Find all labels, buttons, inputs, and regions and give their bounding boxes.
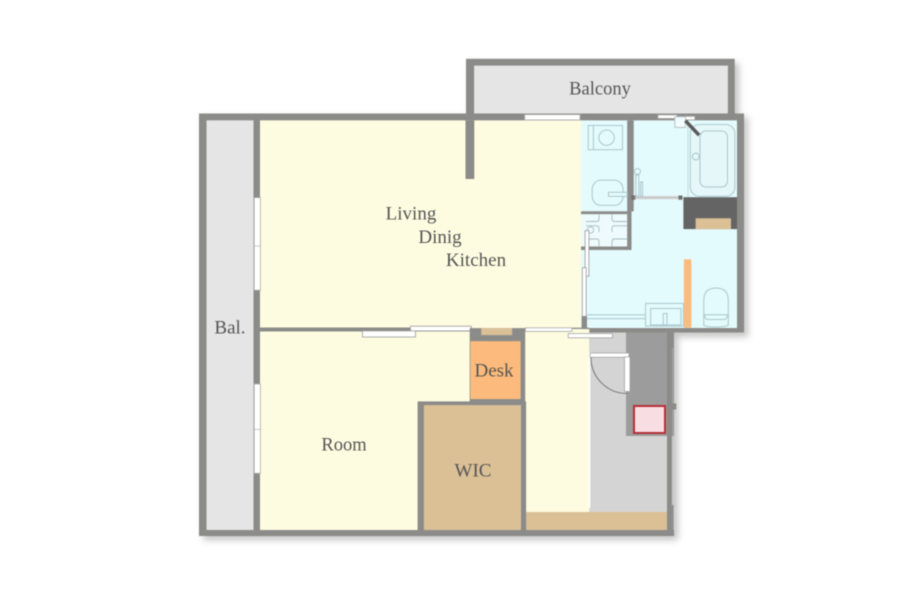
svg-text:Balcony: Balcony — [569, 80, 631, 100]
svg-text:Desk: Desk — [474, 361, 514, 382]
svg-text:Room: Room — [321, 436, 367, 456]
svg-text:Dinig: Dinig — [418, 227, 462, 248]
svg-text:Kitchen: Kitchen — [446, 250, 507, 271]
svg-text:Bal.: Bal. — [214, 318, 245, 339]
svg-text:WIC: WIC — [455, 461, 492, 482]
svg-text:Living: Living — [386, 204, 437, 225]
